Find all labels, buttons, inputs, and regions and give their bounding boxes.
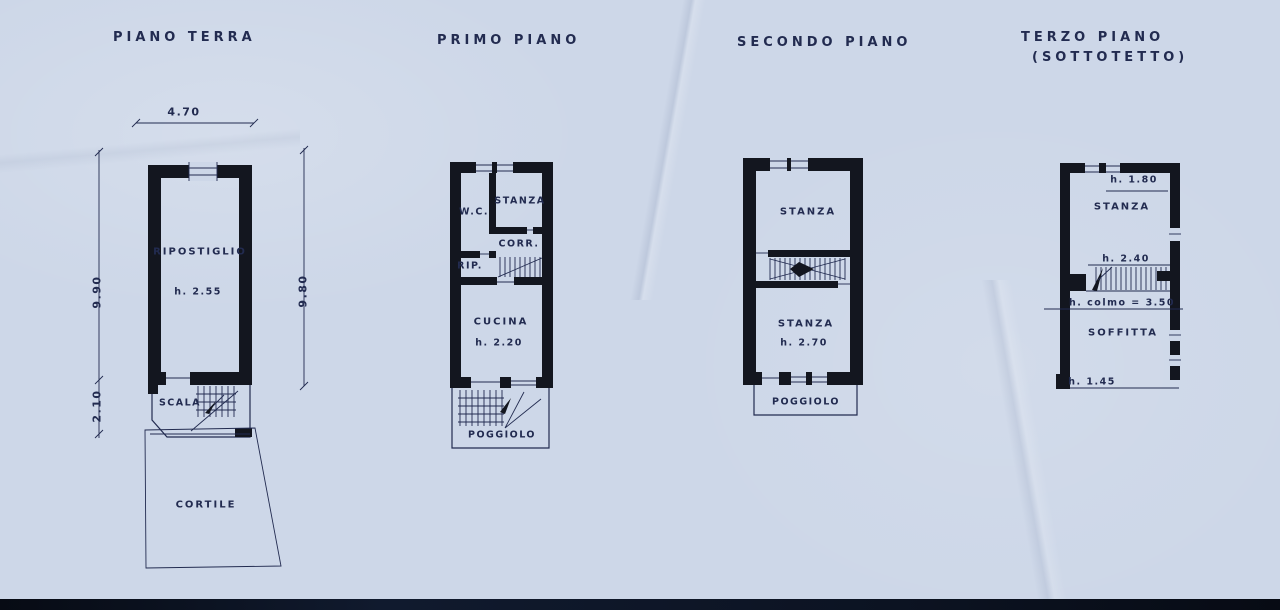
secondo-piano-stair-band xyxy=(756,250,850,288)
dim-height-right-label: 9.80 xyxy=(297,274,310,307)
door-opening xyxy=(762,372,779,385)
room-label-cortile: CORTILE xyxy=(176,500,237,511)
scanned-floor-plan-sheet: PIANO TERRA PRIMO PIANO SECONDO PIANO TE… xyxy=(0,0,1280,610)
room-label-poggiolo: POGGIOLO xyxy=(468,430,536,441)
title-terzo-piano: TERZO PIANO xyxy=(1021,30,1164,45)
room-height-cucina: h. 2.20 xyxy=(475,338,523,349)
room-label-soffitta: SOFFITTA xyxy=(1088,328,1158,339)
terzo-piano-plan xyxy=(1044,161,1183,389)
room-label-stanza-bottom: STANZA xyxy=(778,319,834,330)
door-opening xyxy=(166,372,190,385)
ridge-height-note: h. colmo = 3.50 xyxy=(1069,298,1175,309)
room-label-cucina: CUCINA xyxy=(474,317,529,328)
piano-terra-courtyard-outline xyxy=(145,428,281,568)
window-icon xyxy=(511,377,536,388)
window-icon xyxy=(189,162,217,181)
room-height-ripostiglio: h. 2.55 xyxy=(174,287,222,298)
height-note-top: h. 1.80 xyxy=(1110,175,1158,186)
title-terzo-piano-sub: (SOTTOTETTO) xyxy=(1032,50,1188,65)
room-label-stanza-top: STANZA xyxy=(780,207,836,218)
secondo-piano-plan xyxy=(743,156,863,415)
piano-terra-walls xyxy=(148,165,252,385)
title-primo-piano: PRIMO PIANO xyxy=(437,33,580,48)
room-label-scala: SCALA xyxy=(159,398,201,409)
room-height-stanza-bottom: h. 2.70 xyxy=(780,338,828,349)
height-note-bottom: h. 1.45 xyxy=(1068,377,1116,388)
room-label-stanza: STANZA xyxy=(1094,202,1150,213)
room-label-rip: RIP. xyxy=(457,261,483,272)
height-note-mid: h. 2.40 xyxy=(1102,254,1150,265)
title-secondo-piano: SECONDO PIANO xyxy=(737,35,911,50)
door-opening xyxy=(471,377,500,388)
terzo-piano-stairs xyxy=(1070,265,1170,291)
room-label-corr: CORR. xyxy=(499,239,540,250)
primo-piano-internal-stairs xyxy=(498,257,542,277)
dim-height-left-label: 9.90 xyxy=(91,275,104,308)
dim-width-label: 4.70 xyxy=(167,106,200,119)
room-label-stanza: STANZA xyxy=(494,196,545,207)
dim-height-lower-left-label: 2.10 xyxy=(91,389,104,422)
room-label-wc: W.C. xyxy=(459,207,489,218)
title-piano-terra: PIANO TERRA xyxy=(113,30,256,45)
photo-edge xyxy=(0,599,1280,610)
room-label-poggiolo: POGGIOLO xyxy=(772,397,840,408)
room-label-ripostiglio: RIPOSTIGLIO xyxy=(153,247,247,258)
